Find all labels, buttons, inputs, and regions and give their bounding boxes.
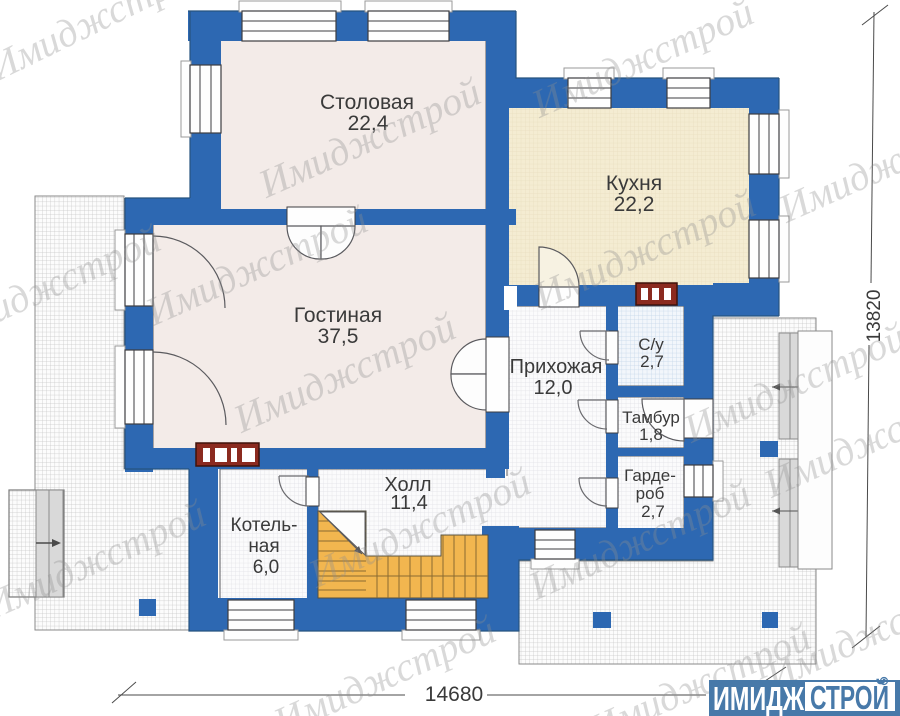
svg-text:1,8: 1,8 <box>639 425 663 444</box>
svg-text:Котель-: Котель- <box>231 515 298 536</box>
svg-text:14680: 14680 <box>425 683 483 706</box>
svg-text:2,7: 2,7 <box>640 352 664 371</box>
svg-text:Прихожая: Прихожая <box>510 356 603 378</box>
svg-text:СТРОЙ: СТРОЙ <box>810 678 889 716</box>
svg-text:роб: роб <box>636 484 665 503</box>
svg-text:12,0: 12,0 <box>534 377 573 399</box>
svg-text:ная: ная <box>248 536 279 557</box>
svg-text:22,2: 22,2 <box>614 193 655 216</box>
svg-text:Гарде-: Гарде- <box>624 466 676 485</box>
svg-text:ИМИДЖ: ИМИДЖ <box>713 680 804 716</box>
svg-text:Гостиная: Гостиная <box>294 304 382 327</box>
svg-text:6,0: 6,0 <box>253 557 279 578</box>
svg-text:Кухня: Кухня <box>606 172 662 195</box>
